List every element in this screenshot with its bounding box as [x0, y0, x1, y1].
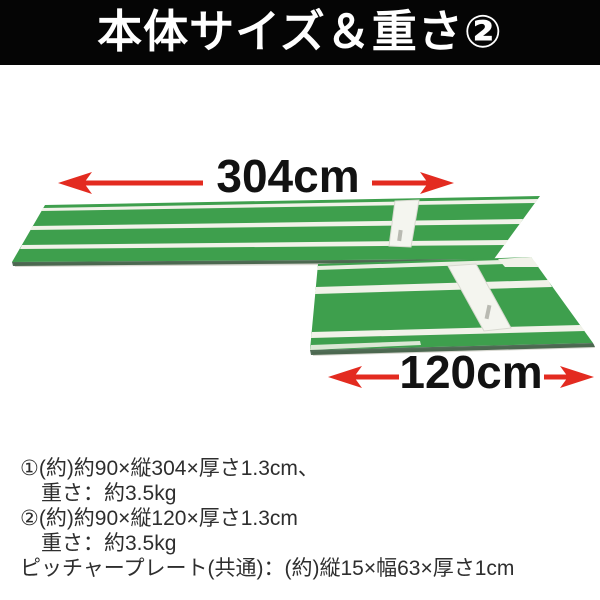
- product-size-infographic: 本体サイズ＆重さ②: [0, 0, 600, 600]
- spec-line: 重さ：約3.5kg: [20, 481, 592, 506]
- spec-line: 重さ：約3.5kg: [20, 531, 592, 556]
- spec-line: ①(約)約90×縦304×厚さ1.3cm、: [20, 456, 592, 481]
- spec-text-block: ①(約)約90×縦304×厚さ1.3cm、 重さ：約3.5kg ②(約)約90×…: [20, 456, 592, 581]
- long-mat-photo: [12, 196, 540, 267]
- spec-line: ピッチャープレート(共通)：(約)縦15×幅63×厚さ1cm: [20, 556, 592, 581]
- dimension-label-120cm: 120cm: [386, 349, 556, 395]
- short-mat-photo: [310, 257, 595, 356]
- dimension-label-304cm: 304cm: [203, 153, 373, 199]
- spec-line: ②(約)約90×縦120×厚さ1.3cm: [20, 506, 592, 531]
